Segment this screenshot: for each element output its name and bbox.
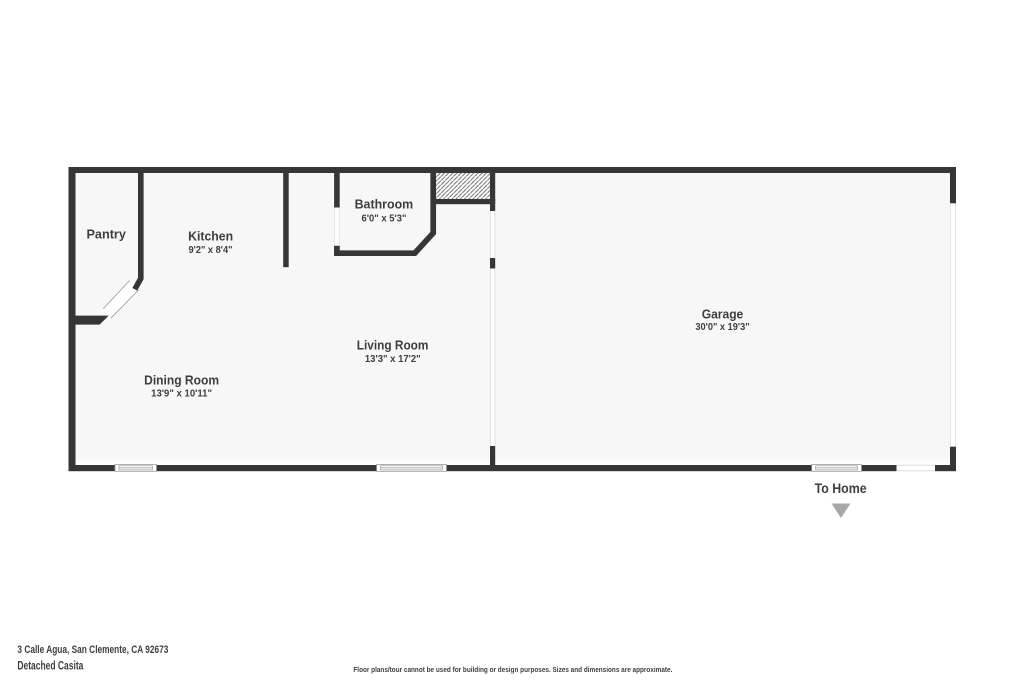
- svg-text:Living Room: Living Room: [357, 338, 429, 352]
- svg-text:Garage: Garage: [702, 306, 744, 321]
- svg-text:9'2" x 8'4": 9'2" x 8'4": [189, 245, 233, 256]
- svg-text:3 Calle Agua, San Clemente, CA: 3 Calle Agua, San Clemente, CA 92673: [17, 644, 168, 656]
- svg-text:6'0" x 5'3": 6'0" x 5'3": [362, 213, 407, 224]
- svg-text:Bathroom: Bathroom: [355, 198, 414, 212]
- svg-text:Floor plans/tour cannot be use: Floor plans/tour cannot be used for buil…: [353, 665, 672, 674]
- svg-text:Pantry: Pantry: [86, 226, 126, 241]
- svg-text:Detached Casita: Detached Casita: [17, 660, 83, 673]
- svg-text:Kitchen: Kitchen: [188, 229, 233, 244]
- svg-text:13'9" x 10'11": 13'9" x 10'11": [151, 389, 212, 400]
- svg-text:Dining Room: Dining Room: [144, 373, 219, 387]
- svg-text:30'0" x 19'3": 30'0" x 19'3": [695, 322, 749, 333]
- svg-text:To Home: To Home: [815, 480, 867, 496]
- svg-text:13'3" x 17'2": 13'3" x 17'2": [365, 354, 421, 365]
